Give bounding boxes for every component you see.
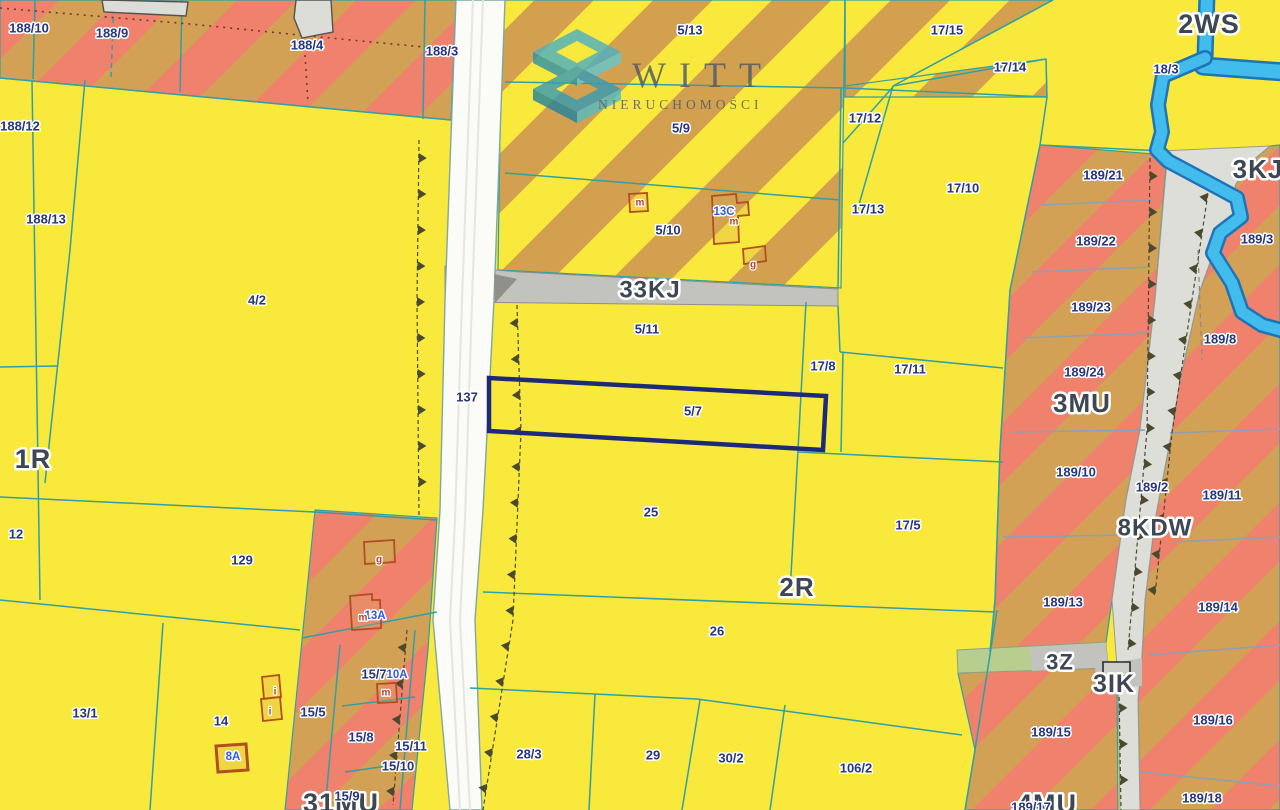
building-letter-label: m bbox=[730, 217, 739, 228]
parcel-label-189/3: 189/3 bbox=[1241, 232, 1274, 247]
zone-label-1R: 1R bbox=[15, 444, 52, 474]
parcel-label-15/7: 15/7 bbox=[361, 667, 386, 682]
address-label-13A: 13A bbox=[364, 610, 385, 622]
parcel-label-17/13: 17/13 bbox=[852, 202, 885, 217]
parcel-label-106/2: 106/2 bbox=[840, 761, 873, 776]
parcel-label-188/4: 188/4 bbox=[291, 38, 324, 53]
building-outline bbox=[261, 697, 282, 721]
parcel-label-17/15: 17/15 bbox=[931, 23, 964, 38]
building-letter-label: m bbox=[359, 613, 368, 624]
building-letter-label: g bbox=[376, 555, 382, 566]
building-letter-label: m bbox=[636, 198, 645, 209]
building-footprint bbox=[294, 0, 333, 38]
parcel-label-129: 129 bbox=[231, 553, 253, 568]
parcel-label-188/13: 188/13 bbox=[26, 212, 66, 227]
zone-label-8KDW: 8KDW bbox=[1118, 515, 1193, 542]
zone-label-3Z: 3Z bbox=[1046, 650, 1074, 675]
parcel-label-15/9: 15/9 bbox=[334, 789, 359, 804]
parcel-label-188/10: 188/10 bbox=[9, 21, 49, 36]
parcel-label-15/8: 15/8 bbox=[348, 730, 373, 745]
parcel-boundary-line bbox=[1046, 59, 1047, 97]
parcel-label-17/10: 17/10 bbox=[947, 181, 980, 196]
map-canvas[interactable]: 2WS3KJ3MU8KDW2R1R33KJ3Z3IK31MU4MU188/101… bbox=[0, 0, 1280, 810]
building-letter-label: i bbox=[274, 687, 277, 698]
stream-2ws bbox=[1203, 66, 1280, 72]
parcel-label-17/11: 17/11 bbox=[894, 362, 926, 377]
parcel-label-189/8: 189/8 bbox=[1204, 332, 1237, 347]
parcel-label-13/1: 13/1 bbox=[72, 706, 97, 721]
parcel-boundary-line bbox=[0, 366, 58, 367]
witt-watermark-subtitle: NIERUCHOMOŚCI bbox=[598, 97, 763, 112]
map-viewport[interactable]: 2WS3KJ3MU8KDW2R1R33KJ3Z3IK31MU4MU188/101… bbox=[0, 0, 1280, 810]
parcel-label-15/5: 15/5 bbox=[300, 705, 325, 720]
parcel-label-25: 25 bbox=[644, 505, 658, 520]
parcel-label-189/2: 189/2 bbox=[1136, 480, 1169, 495]
parcel-label-29: 29 bbox=[646, 748, 660, 763]
parcel-label-26: 26 bbox=[710, 624, 724, 639]
parcel-label-12: 12 bbox=[9, 527, 23, 542]
building-letter-label: g bbox=[750, 260, 756, 271]
parcel-label-18/3: 18/3 bbox=[1153, 62, 1178, 77]
parcel-label-5/7: 5/7 bbox=[684, 404, 702, 419]
witt-watermark-title: WITT bbox=[632, 55, 774, 95]
parcel-label-17/14: 17/14 bbox=[994, 60, 1027, 75]
parcel-label-17/8: 17/8 bbox=[810, 359, 835, 374]
parcel-label-189/24: 189/24 bbox=[1064, 365, 1105, 380]
parcel-label-17/12: 17/12 bbox=[849, 111, 882, 126]
parcel-label-189/15: 189/15 bbox=[1031, 725, 1071, 740]
parcel-label-188/9: 188/9 bbox=[96, 26, 129, 41]
address-label-10A: 10A bbox=[386, 669, 407, 681]
parcel-label-189/16: 189/16 bbox=[1193, 713, 1233, 728]
parcel-label-189/17: 189/17 bbox=[1011, 800, 1051, 810]
parcel-label-17/5: 17/5 bbox=[895, 518, 920, 533]
zone-label-33KJ: 33KJ bbox=[619, 277, 680, 304]
parcel-label-14: 14 bbox=[214, 714, 229, 729]
parcel-label-15/10: 15/10 bbox=[382, 759, 415, 774]
zone-label-3MU: 3MU bbox=[1053, 388, 1111, 418]
address-label-8A: 8A bbox=[226, 751, 241, 763]
zone-label-2WS: 2WS bbox=[1178, 9, 1240, 39]
building-letter-label: i bbox=[269, 707, 272, 718]
parcel-label-30/2: 30/2 bbox=[718, 751, 743, 766]
zone-label-2R: 2R bbox=[779, 572, 814, 602]
parcel-label-15/11: 15/11 bbox=[395, 739, 427, 754]
zone-label-3IK: 3IK bbox=[1093, 670, 1135, 698]
parcel-label-188/12: 188/12 bbox=[0, 119, 40, 134]
parcel-label-189/23: 189/23 bbox=[1071, 300, 1111, 315]
parcel-label-5/9: 5/9 bbox=[672, 121, 690, 136]
parcel-label-189/18: 189/18 bbox=[1182, 791, 1222, 806]
parcel-label-189/10: 189/10 bbox=[1056, 465, 1096, 480]
parcel-label-28/3: 28/3 bbox=[516, 747, 541, 762]
building-letter-label: m bbox=[382, 688, 391, 699]
building-outline bbox=[262, 675, 281, 699]
parcel-label-189/14: 189/14 bbox=[1198, 600, 1239, 615]
parcel-label-5/13: 5/13 bbox=[677, 23, 702, 38]
parcel-label-5/11: 5/11 bbox=[635, 322, 660, 337]
parcel-label-4/2: 4/2 bbox=[248, 293, 266, 308]
parcel-label-189/11: 189/11 bbox=[1202, 488, 1241, 503]
parcel-label-188/3: 188/3 bbox=[426, 44, 459, 59]
zone-label-3KJ: 3KJ bbox=[1233, 154, 1280, 184]
parcel-label-189/13: 189/13 bbox=[1043, 595, 1083, 610]
parcel-label-189/21: 189/21 bbox=[1083, 168, 1123, 183]
parcel-label-137: 137 bbox=[456, 390, 478, 405]
parcel-label-5/10: 5/10 bbox=[655, 223, 680, 238]
parcel-label-189/22: 189/22 bbox=[1076, 234, 1116, 249]
